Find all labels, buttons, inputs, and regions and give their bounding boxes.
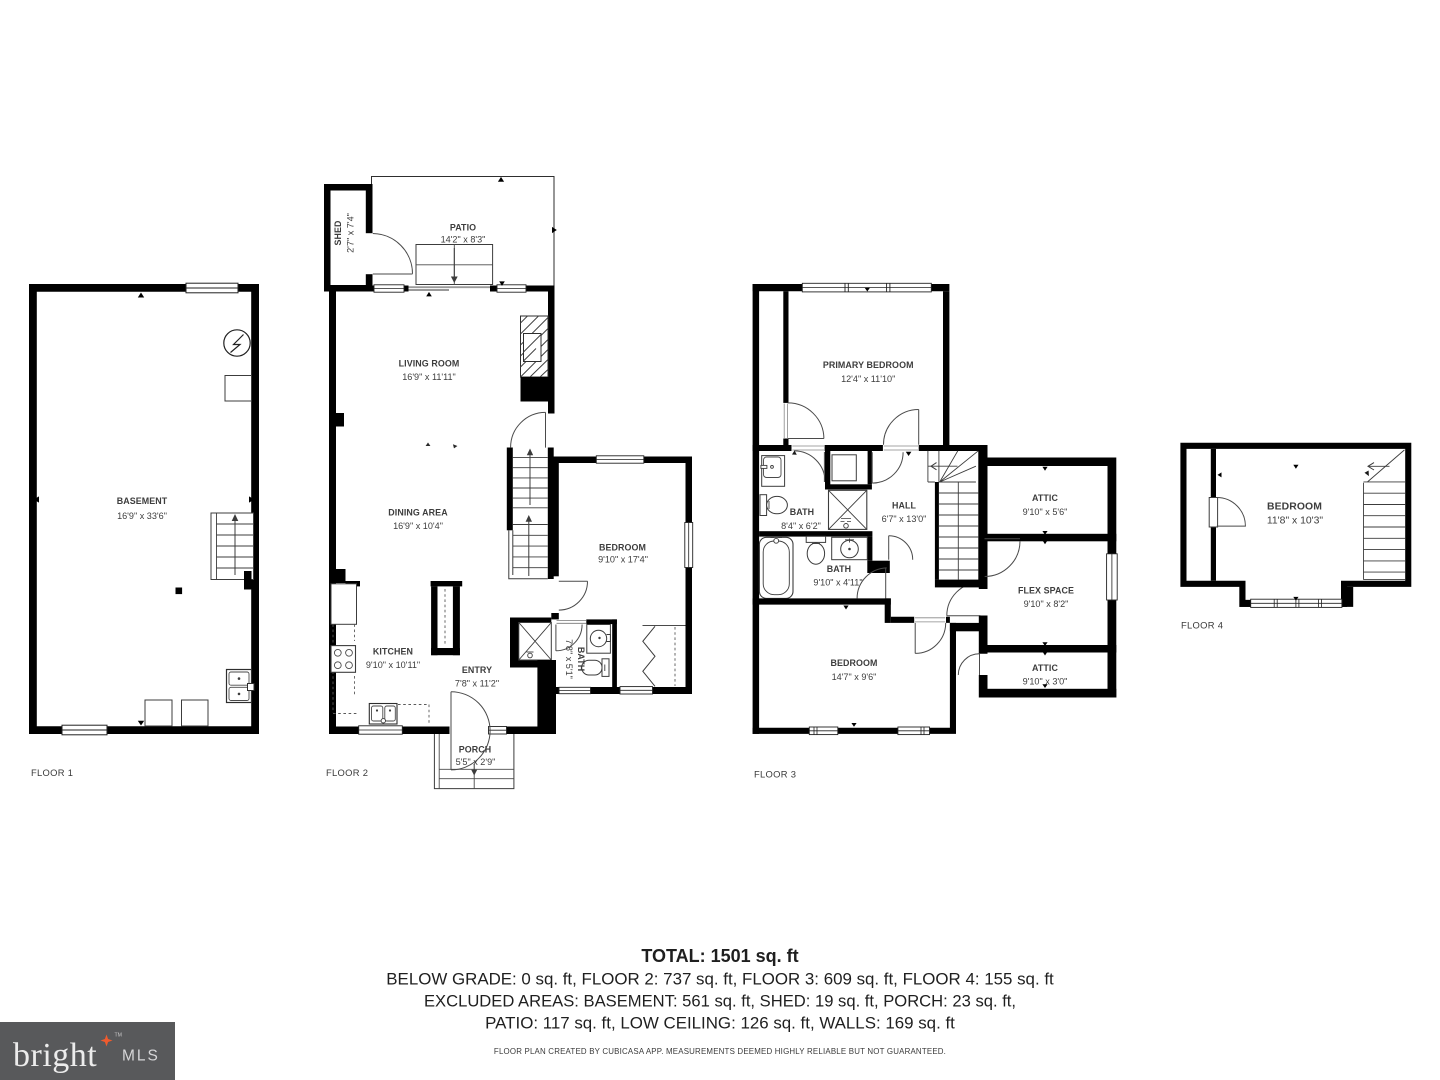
svg-text:PATIO: 117 sq. ft, LOW CEILING: PATIO: 117 sq. ft, LOW CEILING: 126 sq. …	[485, 1014, 955, 1033]
svg-text:TOTAL: 1501 sq. ft: TOTAL: 1501 sq. ft	[641, 946, 798, 966]
svg-text:ATTIC: ATTIC	[1032, 663, 1058, 673]
svg-text:HALL: HALL	[892, 501, 917, 511]
svg-text:7'8" x 5'1": 7'8" x 5'1"	[564, 639, 574, 679]
svg-text:MLS: MLS	[122, 1048, 160, 1065]
svg-text:BELOW GRADE: 0 sq. ft, FLOOR 2: BELOW GRADE: 0 sq. ft, FLOOR 2: 737 sq. …	[386, 970, 1054, 989]
svg-text:16'9" x 11'11": 16'9" x 11'11"	[402, 372, 456, 382]
svg-text:FLOOR 4: FLOOR 4	[1181, 620, 1223, 631]
svg-text:BEDROOM: BEDROOM	[1267, 502, 1322, 513]
svg-text:7'8" x 11'2": 7'8" x 11'2"	[455, 679, 499, 689]
svg-text:9'10" x 8'2": 9'10" x 8'2"	[1024, 599, 1069, 609]
svg-text:9'10" x 17'4": 9'10" x 17'4"	[598, 555, 648, 565]
svg-text:9'10" x 10'11": 9'10" x 10'11"	[366, 660, 420, 670]
svg-text:16'9" x 33'6": 16'9" x 33'6"	[117, 511, 167, 521]
svg-text:LIVING ROOM: LIVING ROOM	[399, 359, 460, 369]
svg-text:BEDROOM: BEDROOM	[830, 658, 877, 668]
svg-text:PATIO: PATIO	[450, 223, 476, 233]
svg-text:ATTIC: ATTIC	[1032, 493, 1058, 503]
svg-text:PORCH: PORCH	[459, 745, 492, 755]
svg-text:ENTRY: ENTRY	[462, 665, 492, 675]
svg-text:SHED: SHED	[333, 220, 343, 246]
svg-text:BEDROOM: BEDROOM	[599, 543, 646, 553]
svg-text:9'10" x 4'11": 9'10" x 4'11"	[813, 578, 862, 588]
svg-text:FLOOR 1: FLOOR 1	[31, 767, 73, 778]
svg-text:FLEX SPACE: FLEX SPACE	[1018, 586, 1074, 596]
svg-text:TM: TM	[115, 1033, 123, 1039]
svg-text:DINING AREA: DINING AREA	[388, 508, 448, 518]
svg-text:FLOOR 2: FLOOR 2	[326, 767, 368, 778]
svg-text:EXCLUDED AREAS: BASEMENT: 561: EXCLUDED AREAS: BASEMENT: 561 sq. ft, SH…	[424, 992, 1016, 1011]
svg-text:BATH: BATH	[790, 507, 814, 517]
svg-text:16'9" x 10'4": 16'9" x 10'4"	[393, 521, 443, 531]
svg-text:14'2" x 8'3": 14'2" x 8'3"	[441, 234, 486, 244]
svg-text:9'10" x 5'6": 9'10" x 5'6"	[1023, 507, 1068, 517]
svg-text:BATH: BATH	[827, 564, 851, 574]
svg-text:FLOOR PLAN CREATED BY CUBICASA: FLOOR PLAN CREATED BY CUBICASA APP. MEAS…	[494, 1047, 946, 1056]
svg-text:2'7" x 7'4": 2'7" x 7'4"	[346, 213, 356, 253]
svg-text:14'7" x 9'6": 14'7" x 9'6"	[832, 672, 877, 682]
svg-text:KITCHEN: KITCHEN	[373, 647, 413, 657]
svg-text:6'7" x 13'0": 6'7" x 13'0"	[882, 514, 927, 524]
svg-text:BASEMENT: BASEMENT	[117, 496, 168, 506]
svg-text:BATH: BATH	[576, 647, 586, 671]
svg-text:11'8" x 10'3": 11'8" x 10'3"	[1267, 516, 1324, 527]
svg-text:FLOOR 3: FLOOR 3	[754, 769, 796, 780]
svg-text:8'4" x 6'2": 8'4" x 6'2"	[781, 521, 821, 531]
svg-text:PRIMARY BEDROOM: PRIMARY BEDROOM	[823, 360, 914, 370]
svg-text:5'5" x 2'9": 5'5" x 2'9"	[456, 757, 496, 767]
svg-text:bright: bright	[13, 1037, 97, 1074]
svg-text:12'4" x 11'10": 12'4" x 11'10"	[841, 374, 895, 384]
